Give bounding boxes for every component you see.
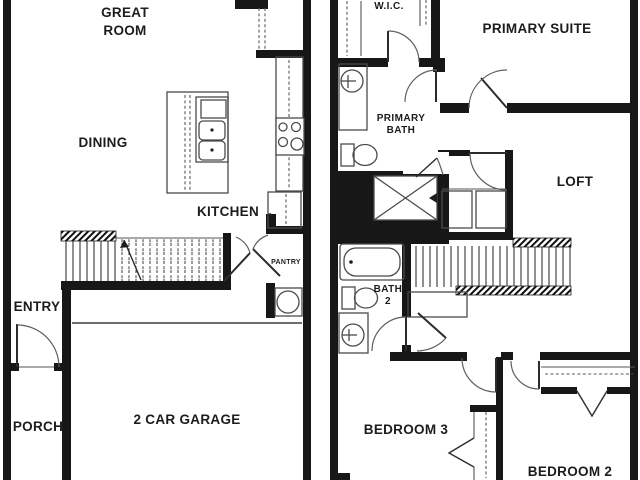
label-primary-suite: PRIMARY SUITE xyxy=(483,21,592,36)
bedroom3-door xyxy=(462,358,496,392)
label-kitchen: KITCHEN xyxy=(197,204,259,219)
label-bath2-line1: BATH xyxy=(374,284,403,295)
label-porch: PORCH xyxy=(13,419,63,434)
floorplan-drawing: GREAT ROOM DINING KITCHEN PANTRY ENTRY P… xyxy=(0,0,640,480)
second-floor-plan: W.I.C. PRIMARY SUITE PRIMARY BATH LOFT B… xyxy=(330,0,638,480)
label-primary-bath-line2: BATH xyxy=(387,125,416,136)
label-pantry: PANTRY xyxy=(271,259,301,266)
bath2-tub xyxy=(340,244,404,280)
water-heater xyxy=(275,288,302,316)
wic-door xyxy=(388,31,419,62)
stair-rail-top xyxy=(513,238,571,247)
front-door xyxy=(17,324,59,367)
cooktop xyxy=(276,118,304,155)
kitchen-sink xyxy=(199,121,225,160)
bath2-toilet xyxy=(342,287,378,309)
laundry-closet xyxy=(442,153,507,228)
stairs-second-floor xyxy=(412,238,571,295)
first-floor-plan: GREAT ROOM DINING KITCHEN PANTRY ENTRY P… xyxy=(3,0,311,480)
linen-closet xyxy=(408,292,467,351)
primary-suite-door xyxy=(469,70,507,108)
label-entry: ENTRY xyxy=(14,299,61,314)
label-loft: LOFT xyxy=(557,174,594,189)
label-wic: W.I.C. xyxy=(374,1,404,12)
label-great-room-line1: GREAT xyxy=(101,5,149,20)
primary-toilet xyxy=(341,144,377,166)
coat-closet-shelves xyxy=(259,8,265,50)
label-primary-bath-line1: PRIMARY xyxy=(377,113,426,124)
label-dining: DINING xyxy=(78,135,127,150)
kitchen-island xyxy=(167,92,228,193)
pantry-doors xyxy=(224,235,280,281)
label-bedroom3: BEDROOM 3 xyxy=(364,422,449,437)
bedroom2-door xyxy=(511,361,539,389)
bath2-door xyxy=(372,317,406,351)
stair-rail-hatch xyxy=(61,231,116,241)
label-great-room-line2: ROOM xyxy=(103,23,146,38)
primary-bath-vanity xyxy=(339,64,367,130)
stairs-first-floor xyxy=(61,231,223,281)
bath2-vanity xyxy=(339,313,368,353)
floorplan-canvas: GREAT ROOM DINING KITCHEN PANTRY ENTRY P… xyxy=(0,0,640,480)
dishwasher xyxy=(201,100,226,118)
primary-bath-door xyxy=(405,70,437,102)
bedroom2-closet-bifold-door xyxy=(577,391,607,416)
label-bath2-line2: 2 xyxy=(385,296,391,307)
bedroom3-closet xyxy=(449,412,486,480)
dryer xyxy=(476,191,506,228)
label-garage: 2 CAR GARAGE xyxy=(133,412,240,427)
kitchen-counter xyxy=(276,57,304,191)
bedroom3-closet-bifold-door xyxy=(449,438,474,467)
stair-rail-bottom xyxy=(456,286,571,295)
label-bedroom2: BEDROOM 2 xyxy=(528,464,612,479)
